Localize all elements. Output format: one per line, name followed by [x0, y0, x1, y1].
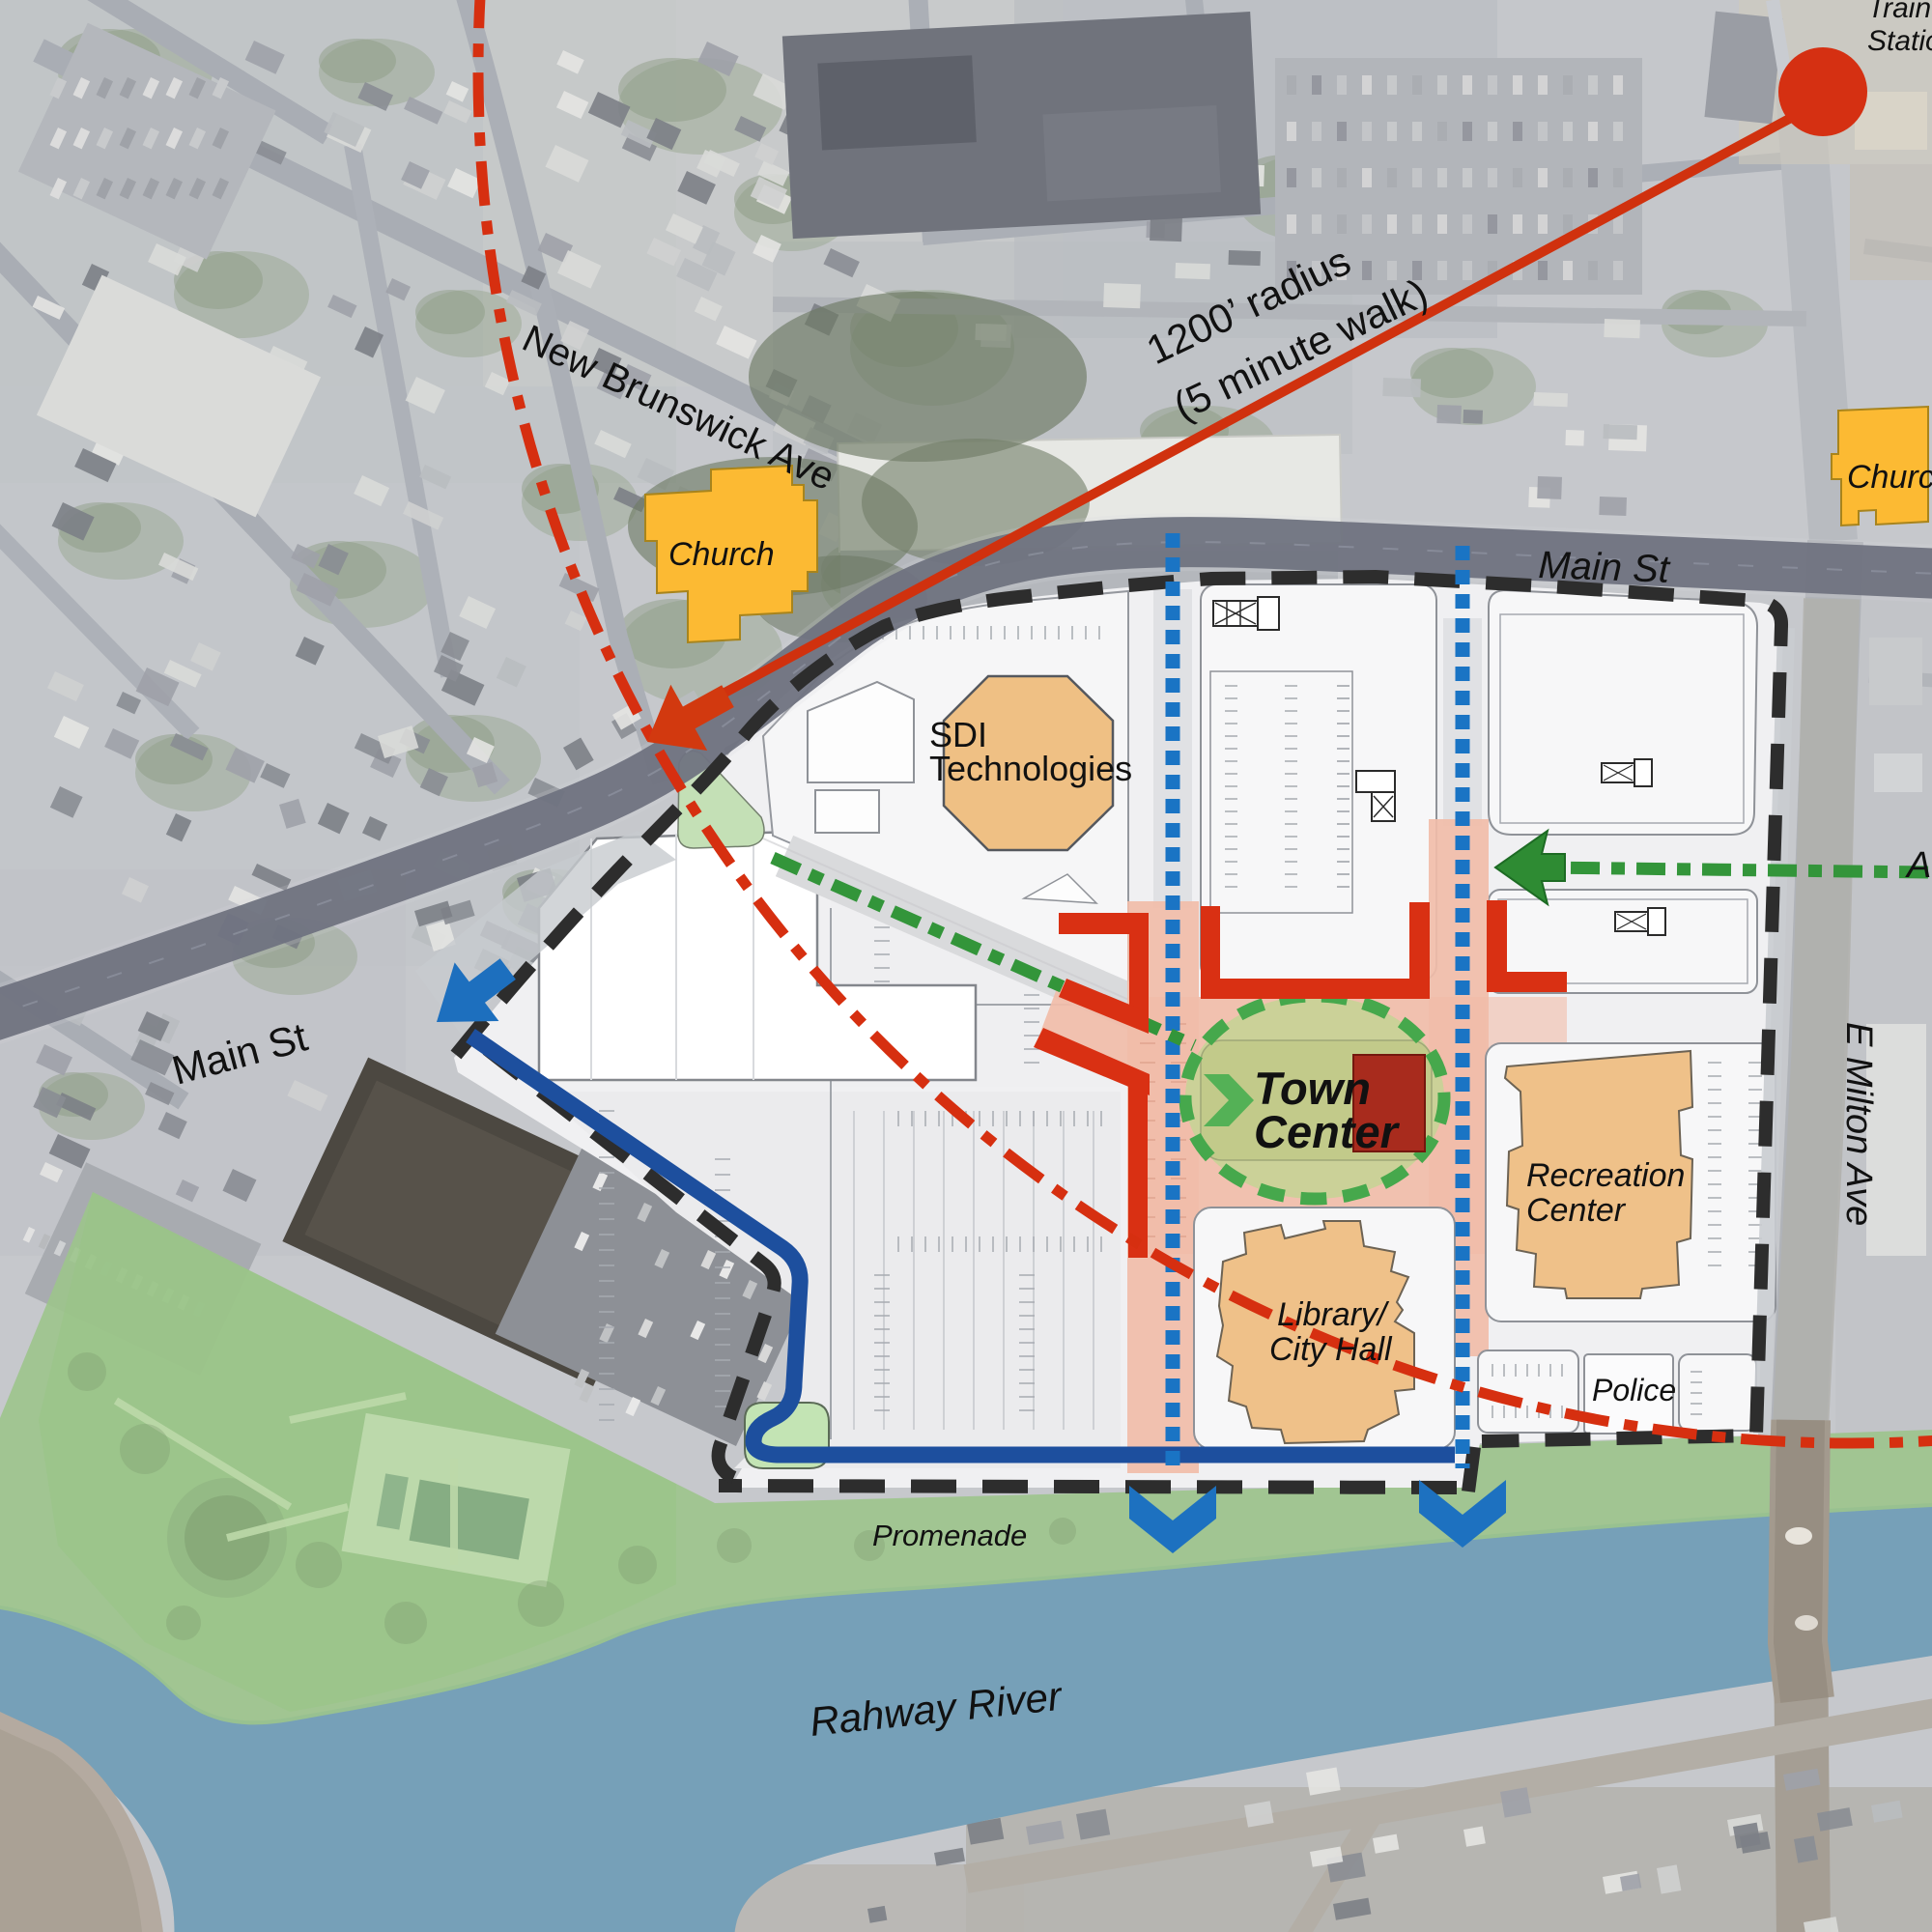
svg-text:Station: Station — [1867, 25, 1932, 57]
svg-text:City Hall: City Hall — [1269, 1331, 1393, 1368]
svg-text:Recreation: Recreation — [1526, 1157, 1685, 1194]
svg-text:Promenade: Promenade — [872, 1519, 1027, 1552]
svg-text:Technologies: Technologies — [929, 749, 1132, 788]
svg-text:Train: Train — [1867, 0, 1931, 24]
svg-text:Library/: Library/ — [1277, 1296, 1390, 1333]
svg-text:Main St: Main St — [1538, 544, 1672, 591]
svg-text:Center: Center — [1526, 1192, 1627, 1229]
svg-text:Church: Church — [1847, 459, 1932, 496]
svg-text:Church: Church — [668, 536, 775, 573]
svg-text:Police: Police — [1592, 1373, 1676, 1407]
svg-text:A: A — [1905, 845, 1931, 886]
svg-text:E Milton Ave: E Milton Ave — [1838, 1022, 1879, 1226]
svg-text:Center: Center — [1254, 1106, 1401, 1157]
